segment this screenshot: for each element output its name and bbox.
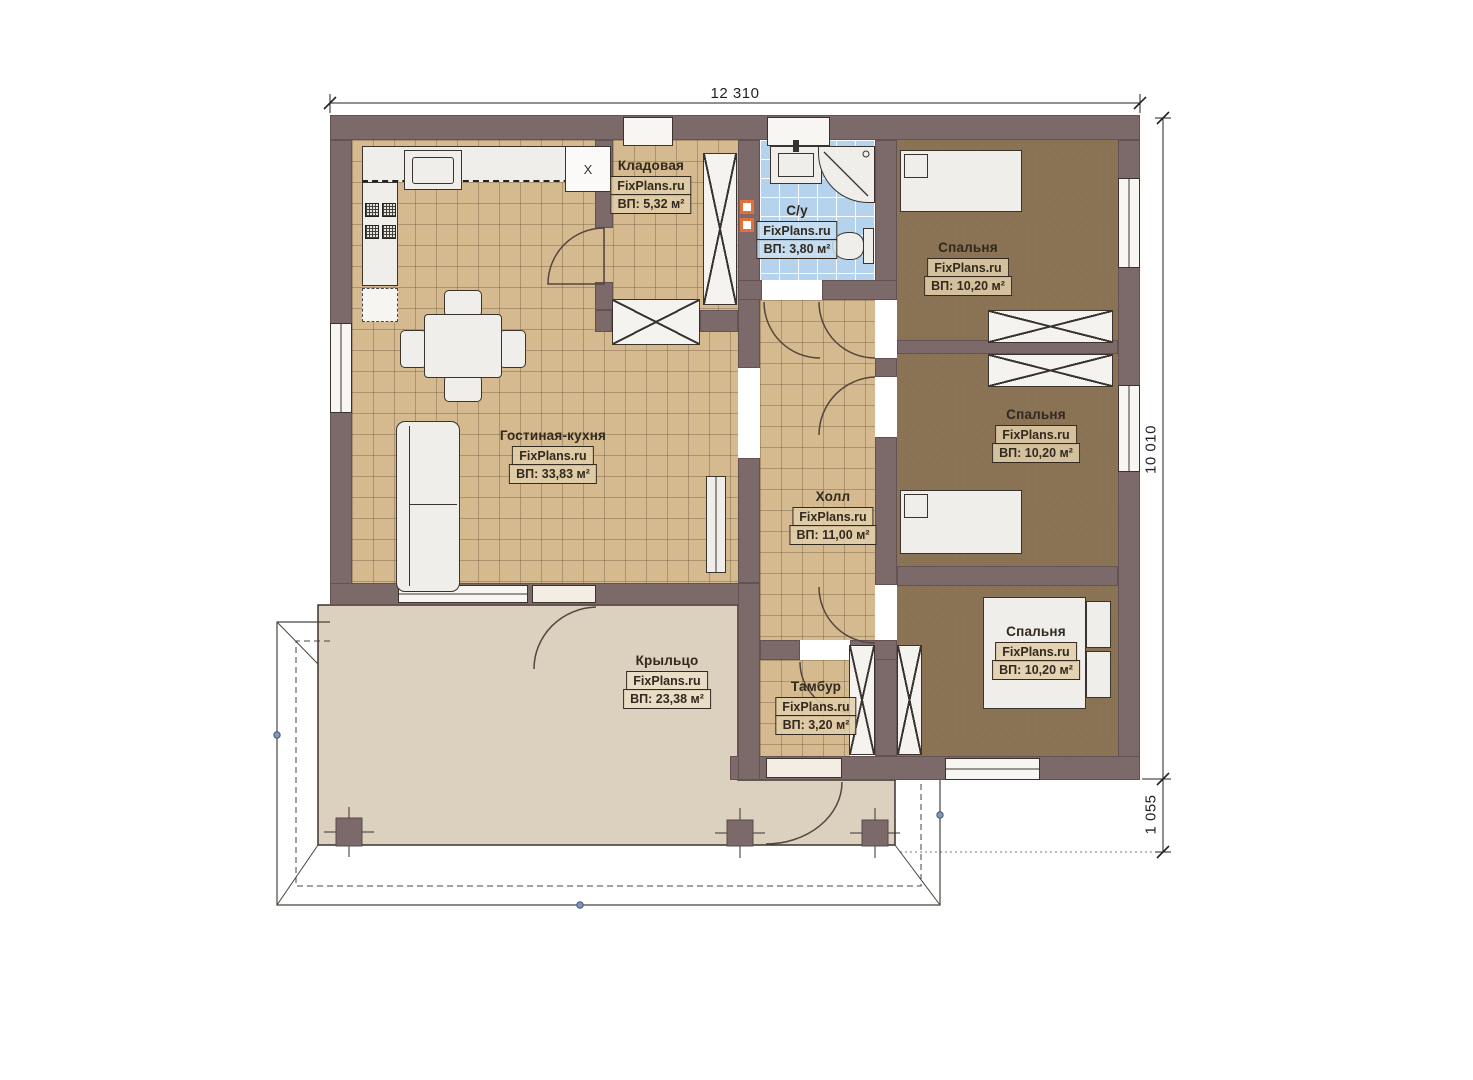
- room-area: ВП: 23,38 м²: [623, 689, 711, 709]
- room-name: Кладовая: [618, 158, 684, 173]
- watermark: FixPlans.ru: [792, 507, 873, 527]
- room-label-storage: Кладовая FixPlans.ru ВП: 5,32 м²: [610, 158, 691, 214]
- room-name: Спальня: [1006, 407, 1066, 422]
- annotation-layer: [0, 0, 1473, 1080]
- door-arc-bedroom-3: [819, 587, 875, 643]
- door-arc-bedroom-2: [819, 377, 875, 435]
- room-label-porch: Крыльцо FixPlans.ru ВП: 23,38 м²: [623, 653, 711, 709]
- room-name: Холл: [816, 489, 851, 504]
- room-area: ВП: 3,80 м²: [757, 239, 838, 259]
- room-name: Тамбур: [791, 679, 841, 694]
- dimension-top-value: 12 310: [685, 85, 785, 102]
- watermark: FixPlans.ru: [775, 697, 856, 717]
- room-label-bedroom-2: Спальня FixPlans.ru ВП: 10,20 м²: [992, 407, 1080, 463]
- room-name: Спальня: [1006, 624, 1066, 639]
- watermark: FixPlans.ru: [995, 425, 1076, 445]
- room-name: Гостиная-кухня: [500, 428, 606, 443]
- watermark: FixPlans.ru: [756, 221, 837, 241]
- dimension-line-right: [900, 112, 1171, 858]
- floor-plan: X: [0, 0, 1473, 1080]
- watermark: FixPlans.ru: [626, 671, 707, 691]
- door-arc-living-porch: [534, 607, 596, 669]
- room-label-living-kitchen: Гостиная-кухня FixPlans.ru ВП: 33,83 м²: [500, 428, 606, 484]
- room-area: ВП: 3,20 м²: [776, 715, 857, 735]
- room-area: ВП: 10,20 м²: [992, 443, 1080, 463]
- watermark: FixPlans.ru: [512, 446, 593, 466]
- door-arc-vestibule-porch: [766, 782, 842, 844]
- room-name: Спальня: [938, 240, 998, 255]
- room-area: ВП: 5,32 м²: [611, 194, 692, 214]
- watermark: FixPlans.ru: [995, 642, 1076, 662]
- dimension-right-value: 10 010: [1143, 410, 1160, 490]
- room-label-bathroom: С/у FixPlans.ru ВП: 3,80 м²: [756, 203, 837, 259]
- watermark: FixPlans.ru: [610, 176, 691, 196]
- room-label-hall: Холл FixPlans.ru ВП: 11,00 м²: [789, 489, 876, 545]
- shower-head: [863, 151, 869, 157]
- room-area: ВП: 10,20 м²: [924, 276, 1012, 296]
- door-arc-bathroom: [764, 302, 820, 358]
- room-area: ВП: 10,20 м²: [992, 660, 1080, 680]
- door-arc-bedroom-1: [819, 302, 875, 358]
- shower-glass-line: [824, 152, 868, 196]
- dimension-bottom-right-value: 1 055: [1143, 780, 1160, 850]
- room-name: Крыльцо: [636, 653, 699, 668]
- room-name: С/у: [786, 203, 808, 218]
- room-label-bedroom-1: Спальня FixPlans.ru ВП: 10,20 м²: [924, 240, 1012, 296]
- room-area: ВП: 11,00 м²: [789, 525, 876, 545]
- watermark: FixPlans.ru: [927, 258, 1008, 278]
- door-arc-storage: [548, 228, 604, 284]
- room-label-bedroom-3: Спальня FixPlans.ru ВП: 10,20 м²: [992, 624, 1080, 680]
- room-label-vestibule: Тамбур FixPlans.ru ВП: 3,20 м²: [775, 679, 856, 735]
- room-area: ВП: 33,83 м²: [509, 464, 597, 484]
